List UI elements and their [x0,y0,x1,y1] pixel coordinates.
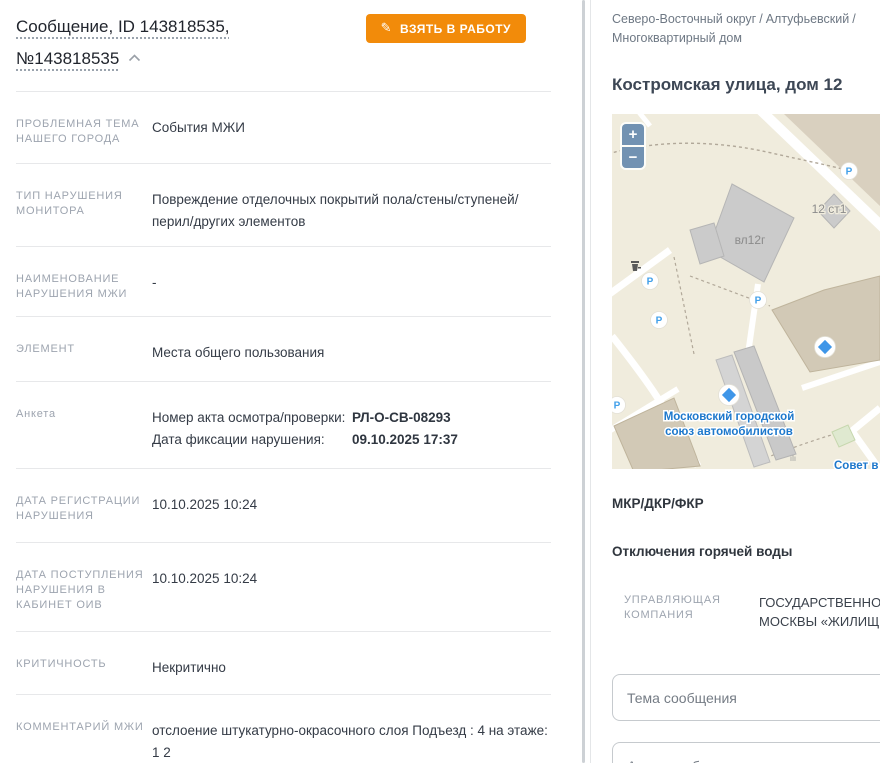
field-label: ДАТА ПОСТУПЛЕНИЯ НАРУШЕНИЯ В КАБИНЕТ ОИВ [16,568,152,631]
field-value: События МЖИ [152,117,551,163]
field-row-criticality: КРИТИЧНОСТЬ Некритично [16,632,551,695]
field-value: отслоение штукатурно-окрасочного слоя По… [152,720,551,763]
management-company-value: ГОСУДАРСТВЕННОЕ МОСКВЫ «ЖИЛИЩН [759,593,880,631]
message-header: Сообщение, ID 143818535, №143818535 ✎ ВЗ… [16,0,551,91]
anketa-pair: Дата фиксации нарушения: 09.10.2025 17:3… [152,429,551,451]
field-label: ДАТА РЕГИСТРАЦИИ НАРУШЕНИЯ [16,494,152,542]
breadcrumb-object-type[interactable]: Многоквартирный дом [612,31,742,45]
chevron-up-icon[interactable] [128,42,141,72]
map-label-vents: ılı [790,454,796,463]
take-to-work-button[interactable]: ✎ ВЗЯТЬ В РАБОТУ [366,14,526,43]
message-title[interactable]: Сообщение, ID 143818535, №143818535 [16,12,230,74]
anketa-value: 09.10.2025 17:37 [352,429,458,451]
map-label-corner: Совет в [834,460,878,469]
anketa-pair: Номер акта осмотра/проверки: РЛ-О-СВ-082… [152,407,551,429]
poi-marker[interactable] [719,385,740,406]
map-zoom-control: + − [620,122,646,170]
field-label: ТИП НАРУШЕНИЯ МОНИТОРА [16,189,152,246]
field-value: - [152,272,551,316]
management-company-label: УПРАВЛЯЮЩАЯ КОМПАНИЯ [624,593,759,631]
map[interactable]: вл12г 12 ст1 ılı P P P P P Московский го… [612,114,880,469]
field-row-registration-date: ДАТА РЕГИСТРАЦИИ НАРУШЕНИЯ 10.10.2025 10… [16,469,551,543]
breadcrumb-district[interactable]: Северо-Восточный округ [612,12,756,26]
field-row-anketa: Анкета Номер акта осмотра/проверки: РЛ-О… [16,382,551,469]
field-value: Места общего пользования [152,342,551,381]
message-topic-input[interactable] [612,674,880,721]
svg-text:P: P [755,296,762,307]
svg-text:P: P [846,167,853,178]
anketa-key: Дата фиксации нарушения: [152,429,352,451]
svg-text:P: P [647,277,654,288]
anketa-pairs: Номер акта осмотра/проверки: РЛ-О-СВ-082… [152,407,551,468]
breadcrumb-separator: / [849,12,858,26]
parking-marker[interactable]: P [651,312,668,329]
map-canvas: вл12г 12 ст1 ılı P P P P P Московский го… [612,114,880,469]
field-value: 10.10.2025 10:24 [152,494,551,542]
field-label: КОММЕНТАРИЙ МЖИ [16,720,152,763]
svg-text:P: P [656,316,663,327]
app-root: Сообщение, ID 143818535, №143818535 ✎ ВЗ… [0,0,880,763]
parking-marker[interactable]: P [612,397,626,414]
field-row-violation-type: ТИП НАРУШЕНИЯ МОНИТОРА Повреждение отдел… [16,164,551,247]
section-title-hot-water: Отключения горячей воды [612,544,880,559]
field-label: КРИТИЧНОСТЬ [16,657,152,694]
field-row-receipt-date: ДАТА ПОСТУПЛЕНИЯ НАРУШЕНИЯ В КАБИНЕТ ОИВ… [16,543,551,632]
field-row-mji-comment: КОММЕНТАРИЙ МЖИ отслоение штукатурно-окр… [16,695,551,763]
zoom-in-button[interactable]: + [622,124,644,145]
breadcrumb-area[interactable]: Алтуфьевский [766,12,850,26]
field-row-problem-topic: ПРОБЛЕМНАЯ ТЕМА НАШЕГО ГОРОДА События МЖ… [16,92,551,164]
message-title-line1[interactable]: Сообщение, ID 143818535, [16,17,230,36]
anketa-value: РЛ-О-СВ-08293 [352,407,451,429]
message-panel: Сообщение, ID 143818535, №143818535 ✎ ВЗ… [0,0,583,763]
field-value: Некритично [152,657,551,694]
map-label-building-main: вл12г [735,233,766,247]
zoom-out-button[interactable]: − [622,147,644,168]
object-panel: Северо-Восточный округ/Алтуфьевский/Мног… [591,0,880,763]
left-panel-scrollbar[interactable] [582,0,585,763]
message-author-input[interactable] [612,742,880,763]
breadcrumb-separator: / [756,12,765,26]
take-to-work-label: ВЗЯТЬ В РАБОТУ [400,22,511,36]
parking-marker[interactable]: P [642,273,659,290]
poi-marker[interactable] [815,337,836,358]
field-row-violation-name: НАИМЕНОВАНИЕ НАРУШЕНИЯ МЖИ - [16,247,551,317]
management-company-row: УПРАВЛЯЮЩАЯ КОМПАНИЯ ГОСУДАРСТВЕННОЕ МОС… [612,593,880,631]
parking-marker[interactable]: P [841,163,858,180]
field-label: ПРОБЛЕМНАЯ ТЕМА НАШЕГО ГОРОДА [16,117,152,163]
svg-text:P: P [614,401,621,412]
field-label: Анкета [16,407,152,468]
breadcrumb: Северо-Восточный округ/Алтуфьевский/Мног… [612,10,880,48]
field-label: ЭЛЕМЕНТ [16,342,152,381]
message-title-line2[interactable]: №143818535 [16,49,119,68]
address-title: Костромская улица, дом 12 [612,75,880,95]
pencil-icon: ✎ [381,21,392,34]
map-label-poi-line2: союз автомобилистов [665,426,793,438]
anketa-key: Номер акта осмотра/проверки: [152,407,352,429]
field-value: Повреждение отделочных покрытий пола/сте… [152,189,551,246]
map-label-building-small: 12 ст1 [812,202,847,216]
field-label: НАИМЕНОВАНИЕ НАРУШЕНИЯ МЖИ [16,272,152,316]
field-value: 10.10.2025 10:24 [152,568,551,631]
map-label-poi-line1: Московский городской [664,411,795,423]
section-title-mkr: МКР/ДКР/ФКР [612,496,880,511]
parking-marker[interactable]: P [750,292,767,309]
field-row-element: ЭЛЕМЕНТ Места общего пользования [16,317,551,382]
